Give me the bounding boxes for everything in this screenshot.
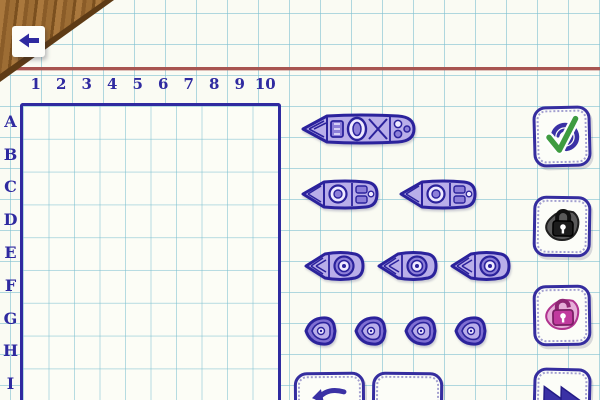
fast-forward-button[interactable]: [532, 367, 592, 400]
ship-2-deck[interactable]: [303, 248, 366, 285]
col-label: 6: [151, 75, 177, 93]
col-label: 8: [202, 75, 228, 93]
padlock-pink-icon: [541, 293, 584, 339]
ship-row-size-2: [303, 248, 512, 285]
ship-4-deck[interactable]: [300, 111, 418, 147]
row-label: F: [2, 269, 19, 302]
col-label: 7: [176, 75, 202, 93]
row-label: C: [2, 171, 19, 204]
ship-2-deck[interactable]: [449, 248, 512, 285]
bottom-right-button[interactable]: [372, 372, 444, 400]
col-label: 2: [49, 75, 75, 93]
row-label: D: [2, 203, 19, 236]
back-button[interactable]: [12, 26, 45, 57]
ship-1-deck[interactable]: [403, 313, 439, 349]
ship-row-size-4: [300, 111, 418, 147]
row-label: E: [2, 236, 19, 269]
column-headers: 12345678910: [23, 75, 278, 93]
board-grid[interactable]: [20, 103, 281, 400]
row-label: A: [2, 105, 19, 138]
lock-pink-button[interactable]: [532, 284, 591, 346]
lock-dark-button[interactable]: [532, 195, 591, 257]
sea-battle-placement-screen: 12345678910 ABCDEFGHI: [0, 0, 600, 400]
back-arrow-icon: [17, 32, 41, 52]
col-label: 5: [125, 75, 151, 93]
ship-3-deck[interactable]: [398, 177, 478, 212]
checkmark-swirl-icon: [539, 111, 584, 161]
ship-1-deck[interactable]: [453, 313, 489, 349]
padlock-dark-icon: [541, 204, 584, 250]
row-label: B: [2, 138, 19, 171]
red-margin-line: [0, 67, 600, 70]
row-headers: ABCDEFGHI: [2, 105, 19, 400]
ship-1-deck[interactable]: [303, 313, 339, 349]
ship-3-deck[interactable]: [300, 177, 380, 212]
confirm-placement-button[interactable]: [532, 105, 592, 167]
ship-2-deck[interactable]: [376, 248, 439, 285]
bottom-left-button[interactable]: [294, 372, 365, 400]
ship-1-deck[interactable]: [353, 313, 389, 349]
ship-row-size-1: [303, 313, 489, 349]
row-label: G: [2, 302, 19, 335]
fast-forward-icon: [539, 384, 584, 400]
row-label: I: [2, 367, 19, 400]
ship-row-size-3: [300, 177, 478, 212]
curved-arrow-icon: [307, 381, 351, 400]
col-label: 4: [100, 75, 126, 93]
row-label: H: [2, 334, 19, 367]
col-label: 9: [227, 75, 253, 93]
col-label: 10: [253, 75, 279, 93]
col-label: 1: [23, 75, 49, 93]
col-label: 3: [74, 75, 100, 93]
